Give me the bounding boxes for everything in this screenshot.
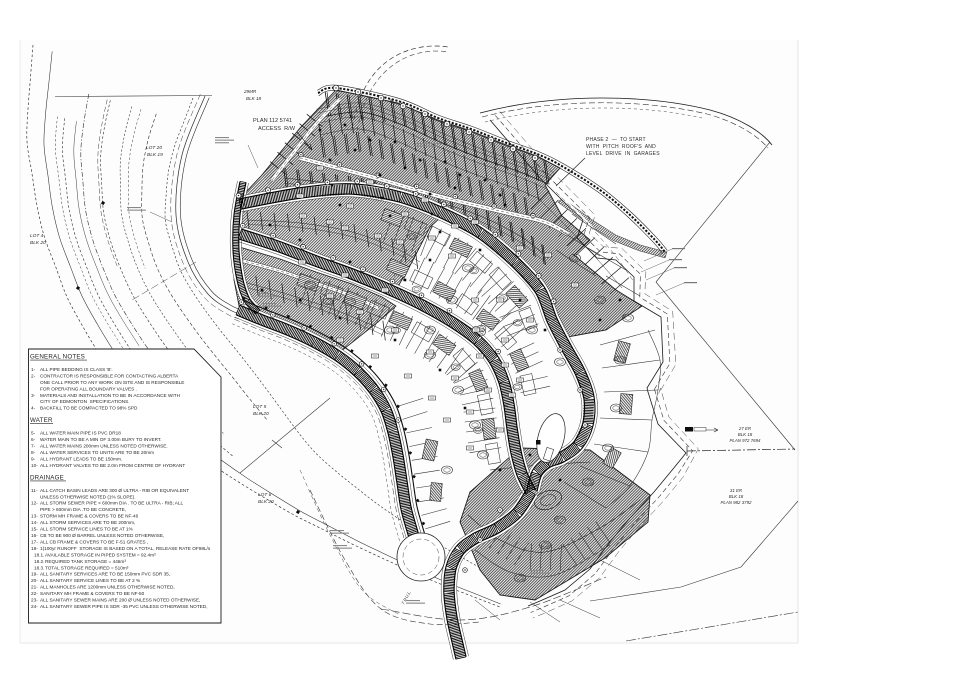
- svg-text:ALL WATER SERVICES TO UNITS AR: ALL WATER SERVICES TO UNITS ARE TO BE 20…: [40, 450, 154, 455]
- svg-text:WATER MAIN TO BE A MIN OF 3.00: WATER MAIN TO BE A MIN OF 3.00m BURY TO …: [40, 437, 162, 442]
- svg-text:ALL SANITARY SERVICE LINES TO: ALL SANITARY SERVICE LINES TO BE AT 2 %: [40, 578, 140, 583]
- svg-text:BLK 18: BLK 18: [729, 494, 744, 499]
- svg-text:ALL SANITARY SEWER MAINS ARE 2: ALL SANITARY SEWER MAINS ARE 200 Ø UNLES…: [40, 598, 200, 603]
- svg-text:PIPE > 600mm DIA .TO BE CONCRE: PIPE > 600mm DIA .TO BE CONCRETE,: [40, 507, 126, 512]
- svg-text:19-: 19-: [31, 572, 38, 577]
- svg-text:4-: 4-: [31, 406, 36, 411]
- svg-text:11-: 11-: [31, 488, 38, 493]
- svg-text:21-: 21-: [31, 585, 38, 590]
- svg-text:9-: 9-: [31, 456, 36, 461]
- svg-text:PLAN 982 3792: PLAN 982 3792: [720, 500, 752, 505]
- svg-text:18-: 18-: [31, 546, 38, 551]
- svg-text:7-: 7-: [31, 444, 36, 449]
- svg-text:2-: 2-: [31, 373, 36, 378]
- svg-text:REQUIRED TANK STORAGE = 446m³: REQUIRED TANK STORAGE = 446m³: [45, 559, 126, 564]
- svg-text:18.1.: 18.1.: [34, 552, 44, 557]
- svg-text:ALL STORM SERVICES ARE TO BE 2: ALL STORM SERVICES ARE TO BE 200mm,: [40, 520, 135, 525]
- svg-text:ALL SANITARY SEWER PIPE IS SDR: ALL SANITARY SEWER PIPE IS SDR -35 PVC U…: [40, 604, 208, 609]
- svg-text:WATER: WATER: [30, 417, 53, 424]
- svg-text:BLK 20: BLK 20: [258, 499, 274, 505]
- svg-text:CONTRACTOR IS RESPONSIBLE FOR: CONTRACTOR IS RESPONSIBLE FOR CONTACTING…: [40, 373, 179, 378]
- svg-text:5-: 5-: [31, 431, 36, 436]
- svg-text:STORM MH FRAME & COVERS TO BE: STORM MH FRAME & COVERS TO BE NF-46: [40, 514, 139, 519]
- svg-text:BLK 19: BLK 19: [147, 152, 163, 158]
- svg-text:16-: 16-: [31, 533, 38, 538]
- svg-text:22-: 22-: [31, 591, 38, 596]
- svg-text:ALL MANHOLES ARE 1200mm UNLESS: ALL MANHOLES ARE 1200mm UNLESS OTHERWISE…: [40, 585, 175, 590]
- svg-text:PHASE 2 — TO START: PHASE 2 — TO START: [586, 137, 646, 143]
- svg-text:24-: 24-: [31, 604, 38, 609]
- svg-text:8-: 8-: [31, 450, 36, 455]
- svg-text:AVAILABLE STORAGE IN PIPED SYS: AVAILABLE STORAGE IN PIPED SYSTEM = 92.4…: [45, 552, 156, 557]
- svg-text:LOT 20: LOT 20: [146, 145, 162, 151]
- svg-text:ALL CATCH BASIN LEADS ARE 300: ALL CATCH BASIN LEADS ARE 300 Ø ULTRA - …: [40, 488, 189, 493]
- svg-text:ONE CALL PRIOR TO ANY WORK ON: ONE CALL PRIOR TO ANY WORK ON SITE AND I…: [40, 380, 184, 385]
- svg-text:23-: 23-: [31, 598, 38, 603]
- svg-text:10-: 10-: [31, 463, 38, 468]
- svg-text:13-: 13-: [31, 514, 38, 519]
- svg-text:LEVEL DRIVE IN GARAGES: LEVEL DRIVE IN GARAGES: [586, 151, 660, 157]
- svg-text:CITY OF EDMONTON SPECIFICATIO: CITY OF EDMONTON SPECIFICATIONS.: [40, 399, 130, 404]
- svg-text:GENERAL NOTES: GENERAL NOTES: [30, 354, 85, 361]
- svg-text:ALL HYDRANT LEADS TO BE 150mm.: ALL HYDRANT LEADS TO BE 150mm.: [40, 456, 122, 461]
- svg-text:ALL HYDRANT VALVES TO BE 2.0m: ALL HYDRANT VALVES TO BE 2.0m FROM CENTR…: [40, 463, 185, 468]
- svg-text:UNLESS OTHERWISE NOTED (1% SLO: UNLESS OTHERWISE NOTED (1% SLOPE).: [40, 494, 136, 499]
- svg-text:18.3.: 18.3.: [34, 565, 44, 570]
- svg-text:BLK 20: BLK 20: [30, 240, 46, 246]
- svg-text:WITH PITCH ROOF'S AND: WITH PITCH ROOF'S AND: [586, 144, 656, 150]
- svg-text:ALL STORM SEWER PIPE < 600mm D: ALL STORM SEWER PIPE < 600mm DIA . TO BE…: [40, 501, 184, 506]
- svg-text:SANITARY MH FRAME & COVERS TO: SANITARY MH FRAME & COVERS TO BE NF-50: [40, 591, 145, 596]
- svg-text:18.2.: 18.2.: [34, 559, 44, 564]
- svg-text:PLAN 112 5741: PLAN 112 5741: [253, 118, 292, 124]
- svg-text:27 ER: 27 ER: [738, 426, 752, 431]
- svg-text:12-: 12-: [31, 501, 38, 506]
- svg-text:ACCESS R/W: ACCESS R/W: [258, 126, 296, 132]
- svg-text:DRAINAGE: DRAINAGE: [30, 474, 64, 481]
- svg-text:20-: 20-: [31, 578, 38, 583]
- svg-text:LOT 5: LOT 5: [253, 404, 267, 410]
- svg-text:15-: 15-: [31, 527, 38, 532]
- svg-text:TOTAL STORAGE REQUIRED = 510m³: TOTAL STORAGE REQUIRED = 510m³: [45, 565, 129, 570]
- svg-text:6-: 6-: [31, 437, 36, 442]
- svg-text:ALL CB FRAME & COVERS TO BE F-: ALL CB FRAME & COVERS TO BE F-51 GRATES …: [40, 540, 148, 545]
- svg-text:LOT 6: LOT 6: [258, 492, 272, 498]
- svg-text:MATERIALS AND INSTALLATION TO: MATERIALS AND INSTALLATION TO BE IN ACCO…: [40, 393, 180, 398]
- svg-text:ALL WATER MAIN PIPE IS PVC DR1: ALL WATER MAIN PIPE IS PVC DR18: [40, 431, 121, 436]
- svg-text:LOT 4: LOT 4: [30, 233, 44, 239]
- svg-text:FOR OPERATING ALL BOUNDARY VAL: FOR OPERATING ALL BOUNDARY VALVES .: [40, 386, 137, 391]
- svg-text:PLAN 972 7694: PLAN 972 7694: [729, 438, 761, 443]
- svg-text:31 ER: 31 ER: [730, 488, 743, 493]
- svg-text:ALL STORM SERVICE LINES TO BE: ALL STORM SERVICE LINES TO BE AT 1%: [40, 527, 133, 532]
- svg-text:1(100yr RUNOFF STORAGE IS BAS: 1(100yr RUNOFF STORAGE IS BASED ON A TOT…: [40, 546, 211, 551]
- svg-text:1-: 1-: [31, 367, 36, 372]
- svg-text:BACKFILL TO BE COMPACTED TO 98: BACKFILL TO BE COMPACTED TO 98% SPD: [40, 406, 138, 411]
- svg-text:14-: 14-: [31, 520, 38, 525]
- svg-text:17-: 17-: [31, 540, 38, 545]
- svg-text:CB TO BE 900 Ø BARREL UNLESS N: CB TO BE 900 Ø BARREL UNLESS NOTED OTHER…: [40, 533, 164, 538]
- svg-text:ALL PIPE BEDDING IS CLASS 'B'.: ALL PIPE BEDDING IS CLASS 'B'.: [40, 367, 113, 372]
- svg-text:BLK 18: BLK 18: [246, 96, 262, 101]
- svg-text:29MR: 29MR: [243, 89, 257, 94]
- svg-text:ALL WATER MAINS 200mm UNLESS N: ALL WATER MAINS 200mm UNLESS NOTED OTHER…: [40, 444, 168, 449]
- svg-text:ALL SANITARY SERVICES ARE TO B: ALL SANITARY SERVICES ARE TO BE 150mm PV…: [40, 572, 170, 577]
- svg-text:BLK 20: BLK 20: [253, 411, 269, 417]
- svg-text:3-: 3-: [31, 393, 36, 398]
- svg-text:BLK 18: BLK 18: [738, 432, 753, 437]
